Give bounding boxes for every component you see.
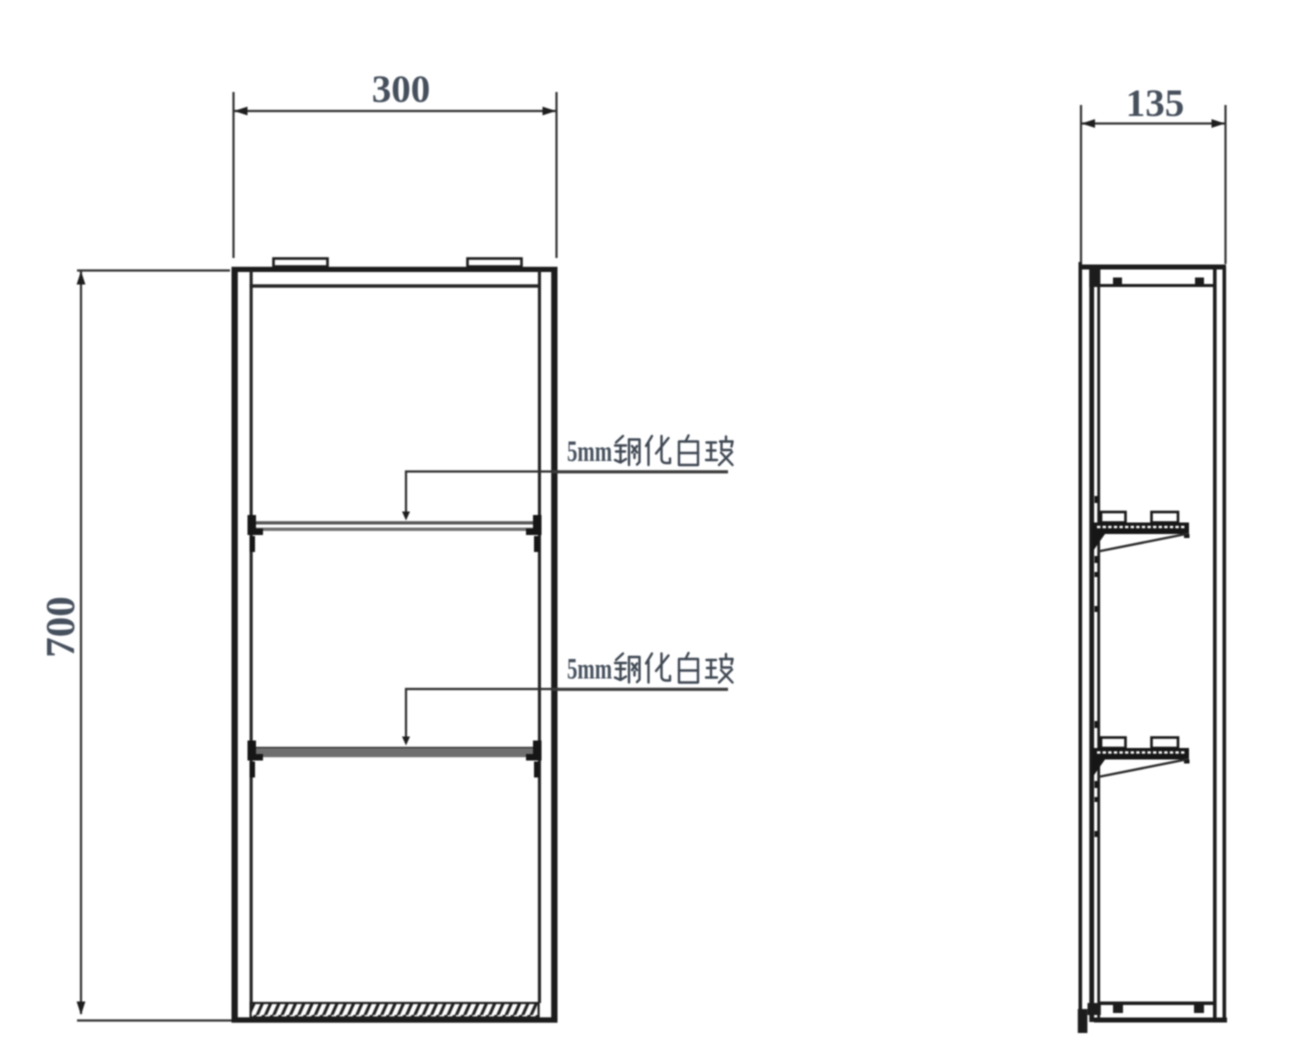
svg-text:700: 700 [37,596,83,658]
svg-text:5mm: 5mm [567,653,612,686]
svg-text:300: 300 [372,68,431,111]
svg-text:135: 135 [1126,82,1185,125]
svg-text:5mm: 5mm [567,435,612,468]
